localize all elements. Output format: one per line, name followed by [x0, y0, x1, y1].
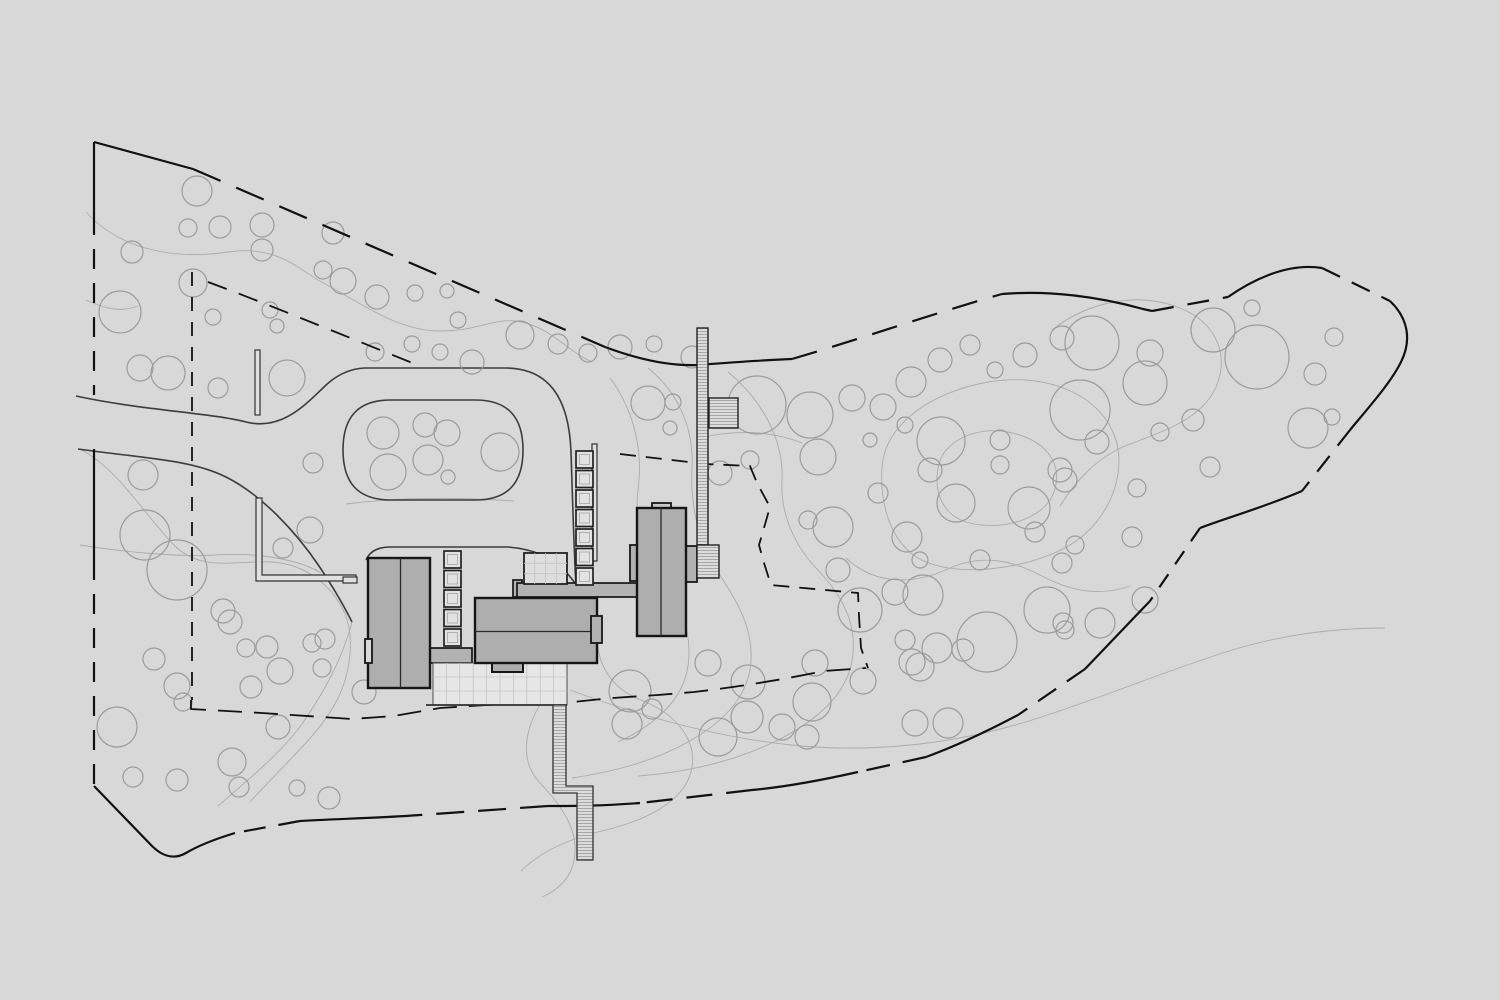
- left-building-notch: [365, 639, 372, 663]
- fireplace: [591, 616, 602, 643]
- gate-wall: [255, 350, 260, 415]
- garden-stairs: [553, 705, 593, 860]
- spine-wall: [697, 328, 719, 578]
- main-building: [475, 598, 602, 672]
- right-building: [630, 503, 697, 636]
- driveway-island: [343, 400, 523, 500]
- driveway: [76, 368, 577, 622]
- property-boundary: [94, 142, 1407, 857]
- site-plan-svg: [0, 0, 1500, 1000]
- right-building-bump-east: [686, 546, 697, 582]
- main-building-footprint: [475, 598, 597, 663]
- west-wall-bar: [343, 577, 357, 583]
- hatched-pavilion: [709, 398, 738, 428]
- connector-strip: [430, 648, 472, 663]
- left-building: [365, 558, 430, 688]
- building-complex: [365, 328, 738, 860]
- left-building-footprint: [368, 558, 430, 688]
- tree-circles: [97, 176, 1343, 809]
- site-plan: [0, 0, 1500, 1000]
